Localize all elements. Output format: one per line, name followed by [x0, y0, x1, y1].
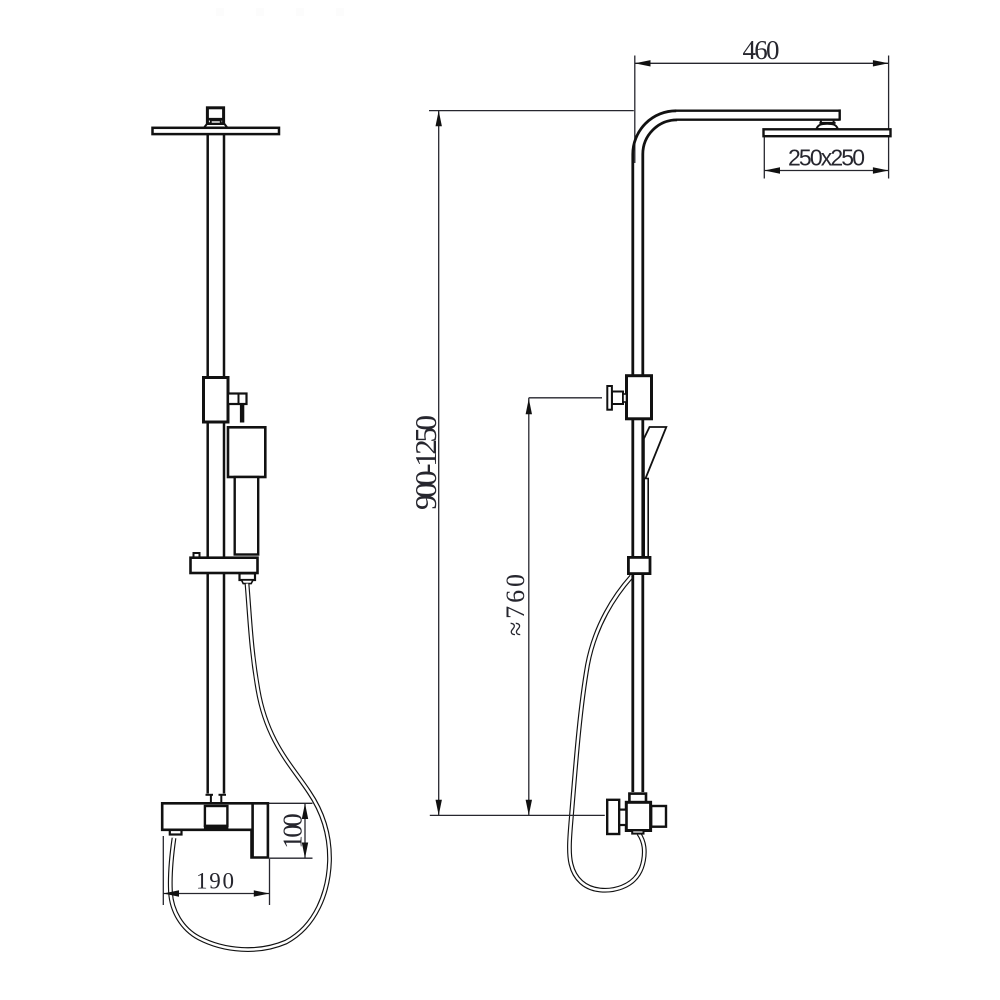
svg-text:460: 460: [743, 35, 780, 65]
svg-text:190: 190: [196, 869, 234, 894]
svg-text:250x250: 250x250: [788, 145, 865, 171]
svg-text:100: 100: [278, 813, 308, 849]
svg-text:900-1250: 900-1250: [408, 415, 443, 510]
